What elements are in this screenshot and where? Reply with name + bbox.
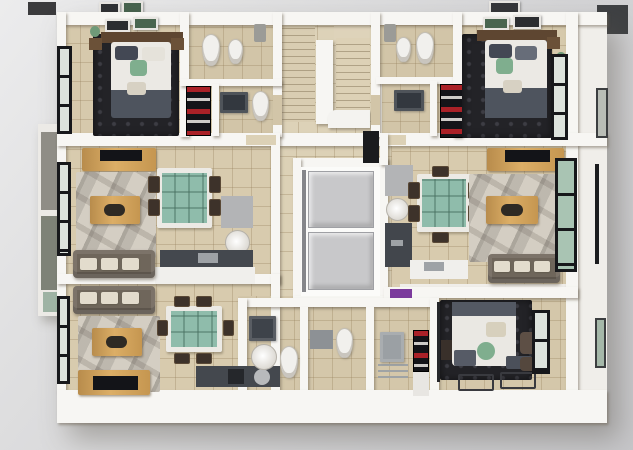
window-bedroomF bbox=[532, 310, 550, 374]
sofa-D-pillow2 bbox=[101, 292, 118, 304]
tv-livingD bbox=[93, 376, 138, 390]
toilet-bathTL-main bbox=[202, 34, 220, 66]
shower-head-TR bbox=[384, 24, 396, 42]
chair-D-top1 bbox=[174, 296, 190, 307]
toilet-bathTR bbox=[416, 32, 434, 64]
plant-bedroomTL bbox=[90, 26, 100, 37]
towel-rack-bathF bbox=[378, 364, 408, 382]
wall-aptE-bedroomF bbox=[384, 287, 578, 298]
art-bedroomTR-2 bbox=[513, 15, 541, 29]
wall-bath-top bbox=[238, 298, 438, 307]
floor-mat-F-2 bbox=[500, 372, 536, 389]
stair-landing-white bbox=[328, 110, 370, 128]
pillow-TR-slate bbox=[515, 46, 537, 60]
wall-elevator-left bbox=[293, 158, 301, 304]
pillow-TR-foot bbox=[503, 80, 522, 93]
coffee-table-D-inset bbox=[106, 336, 127, 348]
window-livingE bbox=[555, 158, 577, 272]
elevator-car-upper bbox=[308, 171, 374, 228]
throw-TR-green bbox=[496, 58, 513, 74]
kitchen-basin-E bbox=[386, 198, 409, 221]
kitchen-faucet-E bbox=[391, 240, 403, 246]
closet-TL bbox=[186, 86, 211, 136]
laundry-cabinet-F bbox=[380, 332, 404, 362]
sofa-D-pillow3 bbox=[122, 292, 139, 304]
closet-F bbox=[413, 330, 429, 372]
vanity-hallTR bbox=[394, 90, 424, 111]
chair-C-right1 bbox=[209, 176, 221, 193]
left-terrace-recess-b bbox=[41, 216, 58, 290]
throw-TL-green bbox=[130, 60, 147, 76]
chair-E-left1 bbox=[408, 182, 420, 199]
tv-livingC bbox=[100, 150, 142, 161]
plant-bedroomF bbox=[477, 342, 495, 360]
cabinet-F-white bbox=[413, 372, 429, 396]
toilet-bathD bbox=[280, 346, 298, 378]
art-bedroomTL-2 bbox=[133, 17, 158, 30]
door-gap-bathTR bbox=[371, 95, 380, 125]
window-terrace-right-bottom bbox=[595, 318, 606, 368]
chair-D-right bbox=[223, 320, 234, 336]
art-bedroomTR-1 bbox=[483, 17, 509, 30]
kitchen-sink-E bbox=[424, 262, 444, 271]
chair-E-left2 bbox=[408, 205, 420, 222]
closet-TR bbox=[440, 84, 464, 138]
tv-livingE bbox=[505, 150, 550, 162]
bidet-bathTL bbox=[228, 39, 243, 64]
sofa-C-pillow2 bbox=[101, 258, 118, 270]
chair-D-left bbox=[157, 320, 168, 336]
window-livingC bbox=[57, 162, 71, 256]
chair-C-left2 bbox=[148, 199, 160, 216]
chair-C-right2 bbox=[209, 199, 221, 216]
kitchen-sink-C bbox=[198, 253, 218, 263]
wall-aptE-corridor bbox=[380, 133, 388, 165]
window-bedroomTL bbox=[57, 46, 72, 134]
chair-E-bottom bbox=[432, 232, 449, 243]
nightstand-TL-right bbox=[171, 38, 184, 50]
basin-bathD bbox=[251, 344, 277, 370]
sofa-E-pillow1 bbox=[494, 261, 510, 272]
chair-D-bottom2 bbox=[196, 353, 212, 364]
wall-closetTL-partition bbox=[212, 84, 219, 136]
sofa-C-pillow3 bbox=[122, 258, 139, 270]
cushion-F-1 bbox=[454, 350, 476, 366]
sofa-E-pillow2 bbox=[514, 261, 530, 272]
wall-hallTR-partition bbox=[430, 81, 437, 136]
fridge-right-apartment bbox=[363, 131, 379, 163]
railing-right bbox=[595, 164, 599, 264]
chair-D-top2 bbox=[196, 296, 212, 307]
dining-top-E bbox=[422, 179, 466, 227]
chair-D-bottom1 bbox=[174, 353, 190, 364]
kitchen-cabinet-C bbox=[221, 196, 253, 228]
wall-shadow-bedroomF bbox=[437, 302, 440, 382]
sofa-C-pillow1 bbox=[80, 258, 97, 270]
vanity-bathTL2 bbox=[220, 92, 248, 113]
exterior-object-top-left bbox=[28, 2, 56, 15]
wall-leftapt-corridor bbox=[271, 133, 280, 283]
stove-knob-D bbox=[254, 369, 270, 385]
nightstand-TR-right bbox=[547, 37, 560, 49]
pillow-TR-dark bbox=[489, 44, 512, 58]
coffee-table-E-inset bbox=[501, 204, 523, 216]
window-bedroomTR bbox=[551, 54, 568, 140]
sink-bathF bbox=[310, 330, 333, 349]
elevator-car-lower bbox=[308, 232, 374, 290]
sofa-D-pillow1 bbox=[80, 292, 97, 304]
elevator-door-rail bbox=[302, 170, 306, 292]
nightstand-TL-left bbox=[89, 38, 102, 50]
chair-C-left1 bbox=[148, 176, 160, 193]
coffee-table-C-inset bbox=[104, 204, 125, 216]
window-livingD bbox=[57, 296, 70, 384]
bidet-bathTR bbox=[396, 37, 411, 62]
art-bedroomTL-1 bbox=[105, 19, 130, 32]
left-terrace-window bbox=[43, 292, 58, 312]
pillow-TL-dark bbox=[115, 46, 138, 60]
kitchen-island-C bbox=[155, 267, 255, 284]
shower-head-TL bbox=[254, 24, 266, 42]
pillow-TL-light bbox=[142, 47, 165, 61]
pillow-F-sand bbox=[486, 322, 506, 337]
wall-bath-mid1 bbox=[300, 307, 308, 396]
wall-bath-mid2 bbox=[366, 307, 374, 396]
floor-mat-F-1 bbox=[458, 374, 494, 391]
door-purple bbox=[390, 289, 412, 298]
toilet-bathTL2 bbox=[252, 91, 269, 121]
stair-flight-left bbox=[281, 22, 315, 122]
dining-top-D bbox=[171, 311, 217, 347]
headboard-bedroomF bbox=[452, 302, 516, 316]
door-gap-left-apartment bbox=[246, 135, 276, 145]
toilet-bathF bbox=[336, 328, 353, 358]
washer-bathD bbox=[249, 316, 276, 341]
wall-bathTL-bottom bbox=[180, 79, 282, 86]
nightstand-F bbox=[441, 340, 452, 360]
door-gap-bathTL bbox=[273, 95, 282, 125]
chair-E-top bbox=[432, 166, 449, 177]
window-terrace-right-top bbox=[596, 88, 608, 138]
pillow-TL-foot bbox=[127, 82, 146, 95]
dining-top-C bbox=[162, 173, 207, 223]
sofa-E-pillow3 bbox=[534, 261, 550, 272]
floor-plan-render bbox=[0, 0, 633, 450]
stove-D bbox=[228, 369, 244, 384]
wall-bathTR-bottom bbox=[376, 77, 460, 84]
left-terrace-recess-a bbox=[41, 132, 58, 210]
stair-flight-right bbox=[336, 38, 370, 120]
